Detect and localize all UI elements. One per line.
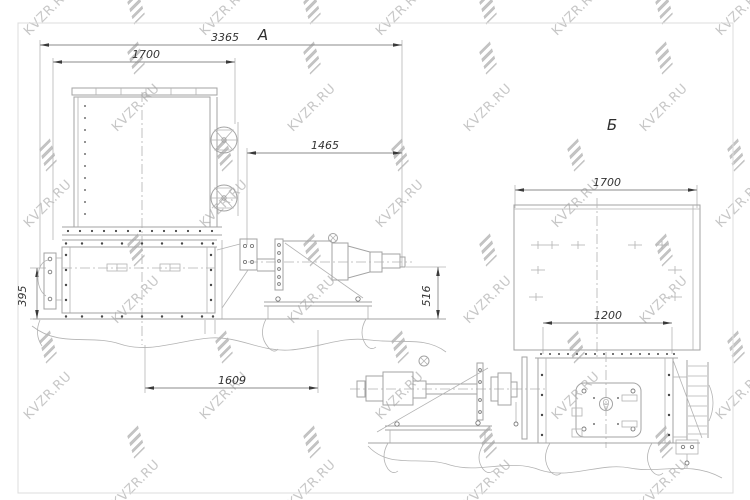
dim-drive-span-a: 1465: [247, 139, 402, 155]
view-a-base-frame: [32, 319, 446, 352]
svg-text:395: 395: [16, 286, 29, 307]
svg-text:516: 516: [420, 286, 433, 307]
dim-overall-length-a: 3365: [40, 31, 402, 47]
svg-text:1700: 1700: [593, 176, 621, 189]
svg-text:1700: 1700: [132, 48, 160, 61]
dim-base-width-b: 1200: [543, 309, 672, 325]
view-a: А 3365: [16, 26, 446, 393]
svg-text:3365: 3365: [211, 31, 239, 44]
sheet-border: [18, 23, 733, 493]
view-b-housing: [538, 352, 673, 448]
technical-drawing-canvas: А 3365: [0, 0, 750, 500]
dim-drive-height: 516: [420, 267, 440, 319]
view-a-fan-top: [210, 127, 238, 153]
dim-body-width-b: 1700: [515, 176, 697, 192]
dim-body-width-a: 1700: [53, 48, 235, 64]
view-a-cooler-body: [72, 88, 217, 345]
view-a-left-bracket: [38, 253, 62, 309]
view-a-label: А: [257, 26, 268, 44]
svg-text:1200: 1200: [594, 309, 622, 322]
dim-frame-height-a: 395: [16, 268, 39, 319]
dim-base-span-a: 1609: [145, 374, 318, 390]
svg-text:1465: 1465: [311, 139, 339, 152]
svg-text:1609: 1609: [218, 374, 246, 387]
view-b-fan-side: [673, 360, 713, 468]
view-b-base-frame: [368, 443, 722, 478]
view-b-drive-assembly: [350, 356, 545, 443]
view-b-label: Б: [607, 116, 617, 134]
view-a-drive-assembly: [217, 234, 412, 320]
view-b-extension-lines: [515, 185, 697, 354]
drawing-sheet: KVZR.RUKVZR.RUKVZR.RUKVZR.RUKVZR.RUKVZR.…: [0, 0, 750, 500]
view-b: Б 1700 1200: [350, 116, 722, 478]
view-a-fan-bottom: [210, 185, 238, 211]
